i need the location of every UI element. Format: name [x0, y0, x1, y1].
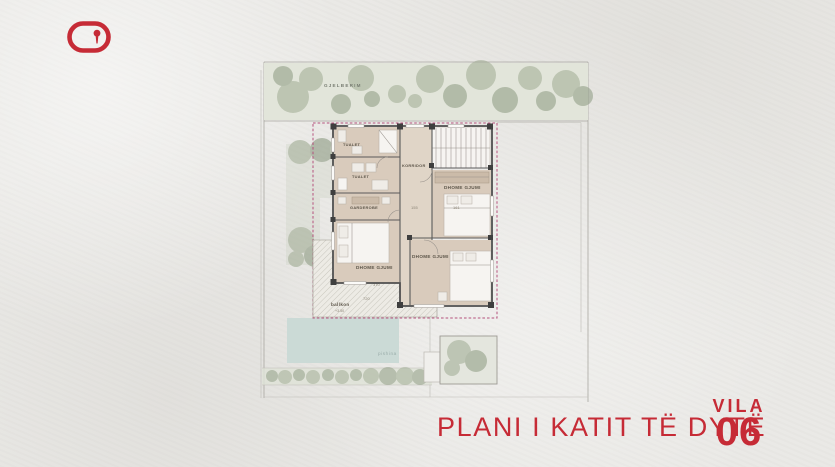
- bed-left: [337, 223, 389, 263]
- bedroom-bottom-label: DHOME GJUMI: [412, 254, 449, 259]
- corridor-label: KORRIDOR: [402, 163, 426, 168]
- building: TUALET TUALET GARDEROBE KORRIDOR DHOME G…: [331, 124, 495, 309]
- dim-bedroom-right: 161: [453, 205, 460, 210]
- dim-balcony-length: 720: [363, 296, 370, 301]
- toilet-1-label: TUALET: [343, 142, 360, 147]
- balcony-level: +3.50: [335, 309, 344, 313]
- greenery-label: GJELBERIM: [324, 83, 362, 88]
- dim-corridor: 155: [411, 205, 418, 210]
- planter-box: [424, 336, 497, 384]
- presentation-slide: GJELBERIM pishina: [0, 0, 835, 467]
- vila-number: 06: [704, 415, 774, 449]
- bedroom-right-label: DHOME GJUMI: [444, 185, 481, 190]
- greenery-band: GJELBERIM: [264, 60, 593, 120]
- hedge-strip: [262, 367, 432, 385]
- wardrobe-shelves: [338, 197, 390, 204]
- pool: pishina: [287, 318, 399, 363]
- balcony-label: ballkon: [331, 302, 350, 307]
- toilet-2-label: TUALET: [352, 174, 369, 179]
- bedroom-left-label: DHOME GJUMI: [356, 265, 393, 270]
- pool-label: pishina: [378, 351, 397, 356]
- wardrobe-label: GARDEROBE: [350, 205, 378, 210]
- vila-badge: VILA 06: [704, 396, 774, 449]
